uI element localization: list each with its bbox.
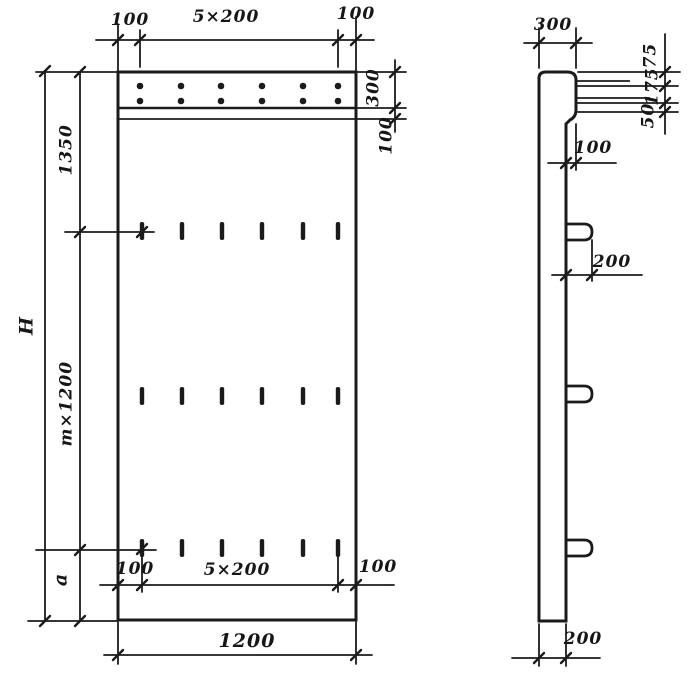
slot bbox=[180, 387, 184, 405]
slot bbox=[220, 539, 224, 557]
bolt-hole bbox=[218, 83, 225, 90]
dim-label-front-bottom-right: 100 bbox=[353, 559, 403, 576]
side-hooks bbox=[566, 224, 592, 556]
slot bbox=[336, 222, 340, 240]
bolt-hole bbox=[137, 83, 144, 90]
panel-outline-front bbox=[118, 72, 356, 620]
dim-label-front-top-span: 5×200 bbox=[191, 9, 261, 26]
hook bbox=[566, 540, 592, 556]
dim-label-side-offset-100: 100 bbox=[568, 140, 618, 157]
panel-drawing bbox=[0, 0, 700, 700]
dim-label-a: a bbox=[52, 568, 71, 592]
bolt-hole bbox=[218, 98, 225, 105]
slot bbox=[220, 387, 224, 405]
dim-label-height-H: H bbox=[18, 311, 37, 341]
dim-label-m-x-1200: m×1200 bbox=[59, 363, 76, 447]
dim-label-thickness-200: 200 bbox=[558, 631, 608, 648]
dim-label-front-band-300: 300 bbox=[366, 66, 383, 110]
slot bbox=[260, 539, 264, 557]
slot bbox=[260, 222, 264, 240]
bolt-hole bbox=[300, 83, 307, 90]
bolt-hole bbox=[335, 98, 342, 105]
slot bbox=[220, 222, 224, 240]
dim-label-front-top-left: 100 bbox=[105, 12, 155, 29]
dim-label-front-band-100: 100 bbox=[379, 114, 396, 158]
slot bbox=[301, 387, 305, 405]
dim-label-front-bottom-span: 5×200 bbox=[202, 562, 272, 579]
slot bbox=[301, 222, 305, 240]
dim-label-hook-200: 200 bbox=[587, 254, 637, 271]
slot bbox=[180, 539, 184, 557]
bolt-hole bbox=[300, 98, 307, 105]
slot bbox=[336, 387, 340, 405]
bolt-hole bbox=[137, 98, 144, 105]
slot bbox=[336, 539, 340, 557]
bolt-hole bbox=[259, 83, 266, 90]
slot bbox=[260, 387, 264, 405]
hook bbox=[566, 224, 592, 240]
slot bbox=[180, 222, 184, 240]
hook bbox=[566, 386, 592, 402]
dim-label-1350: 1350 bbox=[59, 126, 76, 176]
dim-label-width-1200: 1200 bbox=[212, 632, 282, 651]
bolt-hole bbox=[259, 98, 266, 105]
bolt-hole bbox=[335, 83, 342, 90]
cap-hole-lines bbox=[576, 81, 650, 103]
slot bbox=[140, 387, 144, 405]
dim-label-front-top-right: 100 bbox=[331, 6, 381, 23]
dim-label-side-50: 50 bbox=[641, 100, 658, 132]
bolt-hole bbox=[178, 83, 185, 90]
technical-drawing-sheet: 100 5×200 100 300 100 H 1350 m×1200 a 10… bbox=[0, 0, 700, 700]
dim-label-front-bottom-left: 100 bbox=[110, 561, 160, 578]
bolt-hole bbox=[178, 98, 185, 105]
dim-label-side-top-300: 300 bbox=[528, 17, 578, 34]
slot bbox=[301, 539, 305, 557]
